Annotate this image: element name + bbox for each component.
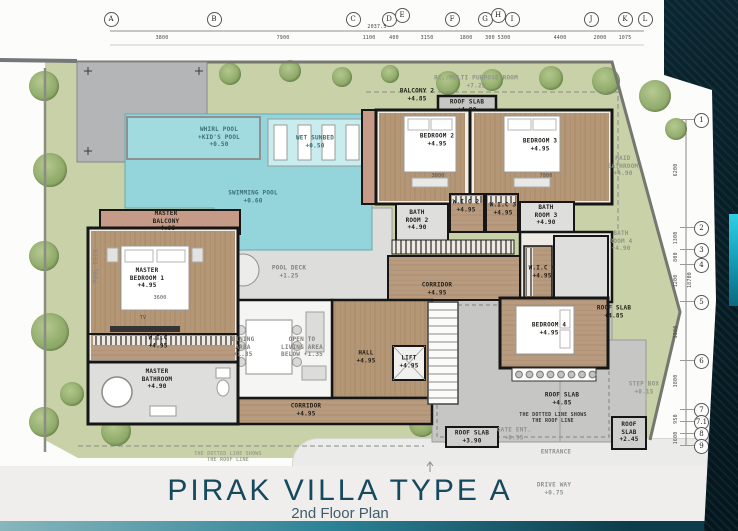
plan-linework (0, 0, 738, 531)
right-wing (520, 232, 612, 302)
bedroom4 (500, 298, 608, 381)
whirl-pool (127, 117, 260, 159)
screenshot-root: PIRAK VILLA TYPE A 2nd Floor Plan (0, 0, 738, 531)
bottom-accent-bar (0, 521, 738, 531)
teal-accent-bar (729, 214, 738, 306)
corner-roof-slab (612, 417, 646, 449)
upper-wing (362, 110, 612, 204)
master-suite (88, 210, 240, 424)
entrance-roof-slab (446, 427, 498, 447)
north-arrow-icon (427, 462, 433, 472)
